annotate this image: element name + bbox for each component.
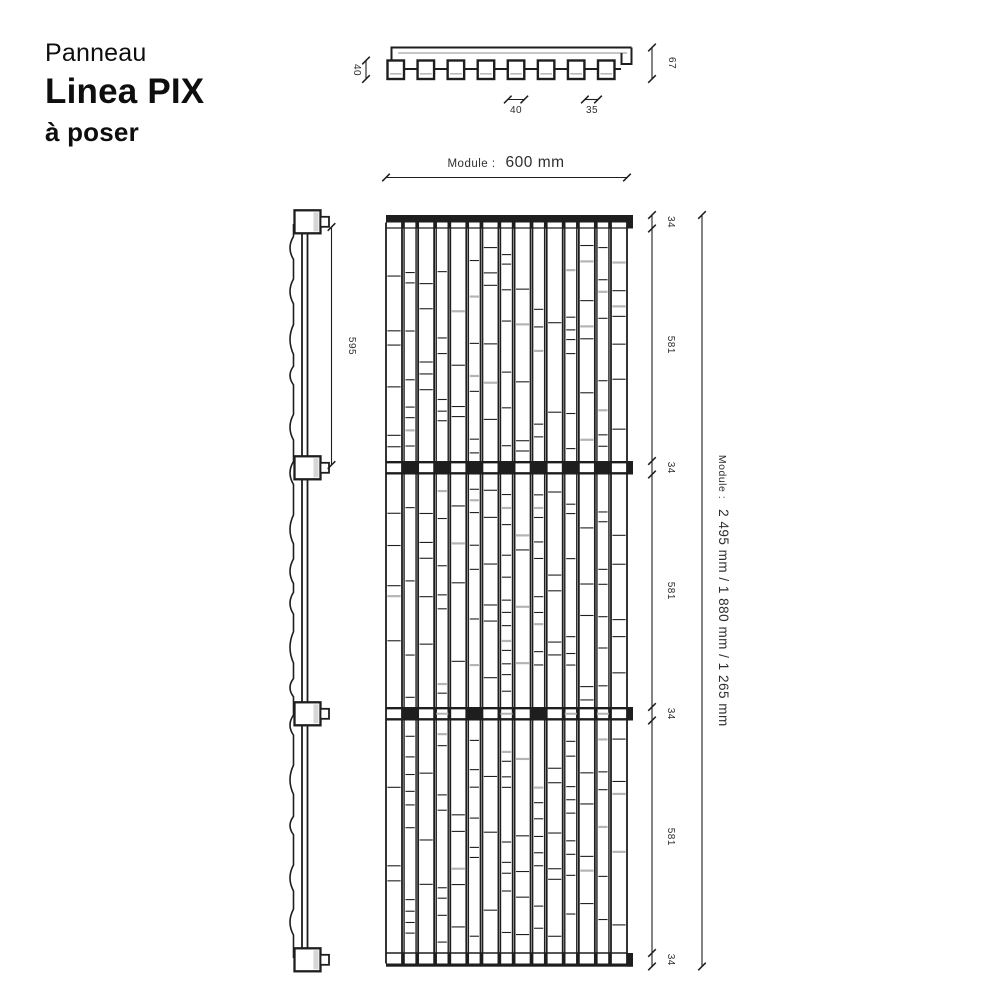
dim-gap-width-35: 35 xyxy=(586,105,598,116)
dim-v-581-2: 581 xyxy=(665,582,676,600)
dim-module-width-prefix: Module : xyxy=(447,158,495,170)
side-profile-view xyxy=(290,210,329,971)
dim-v-581-1: 581 xyxy=(665,336,676,354)
dim-v-581-3: 581 xyxy=(665,828,676,846)
dim-module-width: Module : 600 mm xyxy=(447,154,564,171)
dim-v-34-3: 34 xyxy=(665,708,676,720)
dim-module-width-value: 600 mm xyxy=(506,154,565,171)
dim-module-height: Module : 2 495 mm / 1 880 mm / 1 265 mm xyxy=(715,455,732,727)
dim-v-34-2: 34 xyxy=(665,462,676,474)
dimension-lines xyxy=(328,44,706,971)
dim-slat-width-40: 40 xyxy=(510,105,522,116)
dim-module-height-value: 2 495 mm / 1 880 mm / 1 265 mm xyxy=(716,509,731,727)
dim-panel-depth-67: 67 xyxy=(666,57,677,69)
cad-drawing-canvas: 40 67 40 35 Module : 600 mm 595 34 581 3… xyxy=(0,0,1000,1000)
dim-rail-spacing-595: 595 xyxy=(346,337,357,355)
top-cross-section-view xyxy=(388,47,632,80)
front-view-panel xyxy=(386,215,633,967)
dim-v-34-4: 34 xyxy=(665,954,676,966)
dim-v-34-1: 34 xyxy=(665,216,676,228)
dim-slat-depth-40: 40 xyxy=(351,64,362,76)
technical-drawing-page: Panneau Linea PIX à poser 40 67 40 35 Mo… xyxy=(0,0,1000,1000)
dim-module-height-prefix: Module : xyxy=(716,455,728,499)
